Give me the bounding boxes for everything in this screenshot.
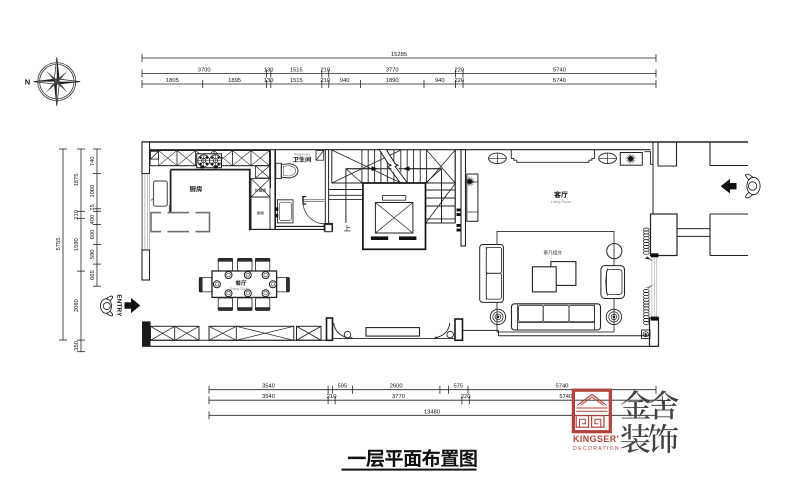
svg-text:2080: 2080 (74, 299, 80, 312)
svg-text:400: 400 (90, 215, 96, 225)
svg-text:15285: 15285 (391, 52, 407, 58)
svg-text:1590: 1590 (74, 238, 80, 251)
svg-text:350: 350 (74, 341, 80, 351)
svg-text:210: 210 (320, 68, 330, 74)
svg-text:130: 130 (264, 68, 274, 74)
svg-text:220: 220 (454, 68, 464, 74)
svg-text:600: 600 (90, 230, 96, 240)
svg-text:210: 210 (327, 394, 337, 400)
svg-text:DECORATION: DECORATION (573, 446, 620, 452)
svg-text:1515: 1515 (290, 78, 303, 84)
svg-text:Washroom: Washroom (294, 152, 310, 156)
svg-text:1515: 1515 (290, 68, 303, 74)
svg-text:1805: 1805 (166, 78, 179, 84)
svg-text:3770: 3770 (386, 68, 399, 74)
svg-text:75: 75 (90, 204, 96, 210)
svg-text:595: 595 (338, 384, 348, 390)
svg-text:5740: 5740 (553, 68, 566, 74)
svg-text:1875: 1875 (74, 174, 80, 187)
svg-text:Dining Room: Dining Room (230, 287, 250, 291)
svg-text:740: 740 (90, 156, 96, 166)
svg-text:5740: 5740 (556, 384, 569, 390)
svg-text:220: 220 (461, 394, 471, 400)
svg-text:1890: 1890 (386, 78, 399, 84)
svg-text:3540: 3540 (262, 384, 275, 390)
svg-text:590: 590 (90, 249, 96, 259)
svg-text:210: 210 (74, 210, 80, 220)
svg-text:5740: 5740 (553, 78, 566, 84)
svg-text:5755: 5755 (56, 238, 62, 251)
svg-text:3700: 3700 (198, 68, 211, 74)
svg-text:940: 940 (340, 78, 350, 84)
svg-text:3770: 3770 (392, 394, 405, 400)
svg-text:3540: 3540 (262, 394, 275, 400)
svg-text:665: 665 (90, 270, 96, 280)
svg-text:940: 940 (435, 78, 445, 84)
svg-text:KINGSER': KINGSER' (573, 434, 619, 444)
svg-text:1895: 1895 (228, 78, 241, 84)
svg-text:575: 575 (453, 384, 463, 390)
svg-text:2600: 2600 (390, 384, 403, 390)
svg-text:210: 210 (320, 78, 330, 84)
svg-text:220: 220 (454, 78, 464, 84)
svg-text:130: 130 (264, 78, 274, 84)
svg-text:5740: 5740 (559, 394, 572, 400)
svg-text:1060: 1060 (90, 185, 96, 198)
svg-text:13480: 13480 (424, 409, 440, 415)
svg-text:Living Room: Living Room (551, 200, 572, 204)
